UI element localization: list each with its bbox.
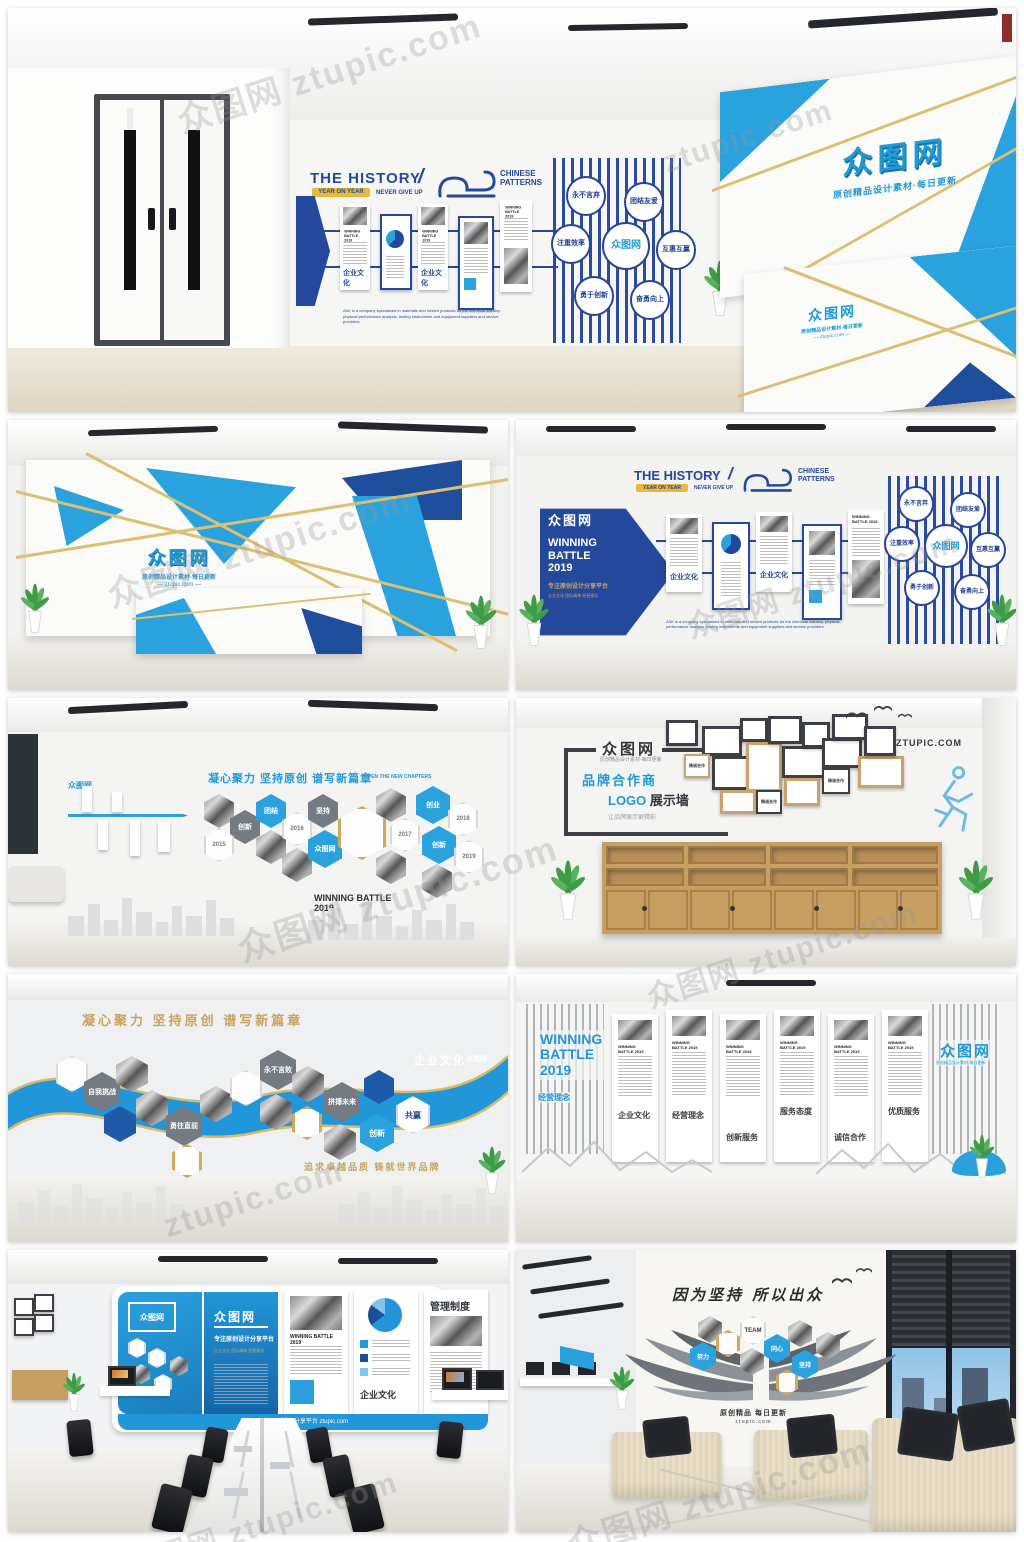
year: 2015 (212, 842, 225, 848)
brand-logo: 众图网 (214, 1308, 256, 1325)
cabinet-door (774, 890, 814, 930)
cabinet-door (858, 890, 898, 930)
ceiling-vent (726, 980, 816, 986)
door-knob (814, 906, 819, 911)
wall-bottom-band: 专注原创设计分享平台 ztupic.com (118, 1414, 488, 1430)
reception-desk: 众图网 原创精品设计素材·每日更新 — ztupic.com — (744, 246, 1016, 412)
value-text: 永不言弃 (572, 192, 600, 200)
panel-photo (343, 207, 367, 225)
winning-line: WINNING (548, 537, 597, 549)
word-hex: 团结 (256, 794, 286, 828)
panel-subtitle: 企业文化 (343, 268, 367, 288)
value-circle: 团结友爱 (624, 182, 664, 222)
bird-icon (874, 704, 892, 712)
chinese-patterns-label: CHINESE PATTERNS (798, 468, 835, 483)
timeline-card (82, 786, 92, 812)
winning-battle: WINNING BATTLE 2019 (538, 1030, 604, 1080)
history-gold-tag: YEAR ON YEAR (636, 484, 688, 492)
pie-chart (368, 1298, 402, 1332)
city-skyline (308, 898, 478, 940)
scene-geometric-reception: 众图网 原创精品设计素材·每日更新 — ztupic.com — (8, 420, 508, 690)
value-text: 勇于创新 (580, 292, 608, 300)
winning-line: WINNING (540, 1031, 602, 1047)
hex (128, 1338, 146, 1358)
mountain-outline (522, 1132, 712, 1176)
left-subtitle: 经营理念 (538, 1092, 570, 1103)
cabinet-door (690, 890, 730, 930)
badge-tags: 企业文化 团队精神 经营理念 (214, 1348, 264, 1354)
plant (540, 834, 596, 946)
winning-line: BATTLE (540, 1046, 594, 1062)
word-hex: 创业 (416, 786, 450, 824)
cabinet-door (732, 890, 772, 930)
panel-title: WINNING BATTLE 2019 (726, 1044, 760, 1054)
pillow (897, 1406, 959, 1461)
logo-frame (720, 790, 756, 814)
value-text: 注重效率 (890, 541, 914, 548)
history-gold-tag: YEAR ON YEAR (312, 188, 370, 197)
tag: 团队精神 (231, 1348, 247, 1353)
legend-swatch (360, 1354, 368, 1362)
logo-frame (746, 742, 782, 792)
cloud-icon (740, 468, 794, 496)
logo-word: LOGO (608, 793, 646, 808)
timeline-card (158, 822, 170, 852)
logo-frame (666, 720, 698, 746)
panel-title: WINNING BATTLE 2019 (852, 514, 880, 524)
panel-photo (809, 531, 835, 555)
logo-block: 众图网 原创精品设计素材·每日更新 — ztupic.com — (104, 544, 254, 588)
ceiling-vent (726, 424, 826, 430)
tag: 经营理念 (582, 593, 598, 598)
mini-timeline: 众图网 (68, 780, 198, 870)
hex-word: 共赢 (405, 1110, 421, 1121)
team-label: TEAM (745, 1328, 762, 1334)
door-stripe (188, 130, 200, 290)
brand-logo: 众图网 (104, 544, 254, 570)
runner-sketch (914, 754, 986, 846)
panel-subtitle: 企业文化 (760, 570, 788, 580)
wall-caption: 原创精品 每日更新 ztupic.com (720, 1408, 787, 1425)
wall-panel: WINNING BATTLE 2019 (284, 1290, 348, 1414)
panel-subtitle: 服务态度 (780, 1106, 814, 1117)
keyboard (270, 1462, 290, 1469)
year: 2016 (290, 826, 303, 832)
door-knob (730, 906, 735, 911)
history-panel: WINNING BATTLE 2019 企业文化 (340, 204, 370, 290)
photo-hex (170, 1356, 188, 1376)
hex-word: 创新 (369, 1128, 385, 1139)
logo-circle: 众图网 (924, 524, 968, 568)
brand-logo: 众图网 (315, 844, 336, 854)
value-circle: 互惠互赢 (970, 532, 1006, 568)
shelf-cell (770, 868, 848, 886)
panel-title: WINNING BATTLE 2019 (834, 1044, 868, 1054)
patterns-line2: PATTERNS (798, 476, 835, 483)
panel-photo (726, 1020, 760, 1040)
value-text: 奋勇向上 (636, 296, 664, 304)
plant (12, 558, 58, 658)
wall-title: 凝心聚力 坚持原创 谱写新篇章 (82, 1010, 303, 1029)
legend-swatch (360, 1368, 368, 1376)
hex-word: 团结 (264, 806, 278, 816)
photo-hex (376, 850, 406, 884)
divider (214, 1326, 268, 1328)
shelf-cell (852, 868, 938, 886)
logo-frame (702, 726, 742, 756)
legend-text (372, 1368, 410, 1376)
scene-vertical-panels-wall: WINNING BATTLE 2019 经营理念 WINNING BATTLE … (516, 974, 1016, 1242)
caption-text: 原创精品 每日更新 (720, 1410, 787, 1417)
winning-line: 2019 (540, 1062, 571, 1078)
panel-text (834, 1056, 868, 1096)
panel-title: WINNING BATTLE 2019 (505, 205, 527, 219)
door-glass (127, 108, 133, 130)
door-leaf-right (164, 100, 224, 340)
sofa (8, 866, 64, 902)
year: 2017 (398, 832, 411, 838)
panel-photo (670, 518, 698, 534)
keyboard (224, 1488, 248, 1496)
door-handle (169, 208, 176, 230)
history-panel-framed (802, 524, 842, 620)
scene-wave-hexagon-wall: 凝心聚力 坚持原创 谱写新篇章 自我挑战 勇往直前 永不言败 拼搏未来 创新 共… (8, 974, 508, 1242)
timeline-card (130, 820, 140, 856)
brand-logo: 众图网 (932, 541, 959, 551)
legend-text (372, 1354, 410, 1362)
value-circle: 奋勇向上 (630, 280, 670, 320)
hex-word: 永不言败 (264, 1065, 292, 1075)
brand-url: ztupic.com (320, 1419, 349, 1425)
hex-word: 拼搏未来 (328, 1097, 356, 1107)
door-knob (898, 906, 903, 911)
year-hex: 2017 (390, 818, 420, 852)
history-title: THE HISTORY (634, 468, 721, 483)
history-panel: 企业文化 (756, 512, 792, 592)
never-give-up: NEVER GIVE UP (376, 190, 423, 196)
shelf-cell (688, 846, 766, 864)
ceiling-light (538, 1302, 624, 1319)
value-circle: 永不言弃 (898, 486, 934, 522)
brand-tagline: 原创精品设计素材·每日更新 (936, 1060, 985, 1066)
pie-chart (386, 230, 404, 248)
preview-collage: THE HISTORY / YEAR ON YEAR NEVER GIVE UP… (0, 0, 1024, 1542)
legend-text (372, 1340, 410, 1348)
bird-icon (832, 1276, 852, 1285)
wave-band (8, 1030, 508, 1170)
year-hex: 2019 (454, 840, 484, 874)
panel-text (214, 1364, 268, 1404)
hex-word: 创新 (432, 840, 446, 850)
ceiling-vent (338, 1258, 438, 1264)
scene-wings-lounge: 因为坚持 所以出众 努力 TEAM 同心 坚持 原创精品 每日更新 ztupic… (516, 1250, 1016, 1532)
value-text: 勇于创新 (910, 585, 934, 592)
plant (456, 570, 506, 674)
logo-frame (864, 726, 896, 756)
hex-word: 同心 (771, 1344, 783, 1353)
wall-panel: 企业文化 (354, 1290, 418, 1414)
logo-block: 众图网 原创精品设计素材·每日更新 (800, 121, 990, 205)
panel-text (464, 248, 488, 274)
photo-frame (14, 1318, 34, 1336)
logo-frame (768, 716, 802, 744)
panel-photo (852, 560, 880, 598)
door-knob (642, 906, 647, 911)
wall-word: 展示墙 (650, 793, 689, 808)
history-panel: WINNING BATTLE 2019 企业文化 (418, 204, 448, 290)
word-hex: 创新 (422, 826, 456, 864)
panel-subtitle: 管理制度 (430, 1298, 470, 1313)
history-panel: WINNING BATTLE 2019 (500, 200, 532, 292)
logo-frame (858, 756, 904, 788)
year: 2018 (456, 816, 469, 822)
history-panel: 企业文化 (666, 514, 702, 592)
door-frame (94, 94, 230, 346)
plant (470, 1124, 508, 1216)
photo-frame (34, 1314, 54, 1332)
value-circle: 勇于创新 (574, 276, 614, 316)
monitor (108, 1366, 136, 1386)
city-skyline (18, 1180, 188, 1222)
panel-accent (464, 278, 476, 290)
scene-history-wall-front: THE HISTORY / YEAR ON YEAR NEVER GIVE UP… (516, 420, 1016, 690)
word-hex: 创新 (230, 810, 260, 844)
value-text: 团结友爱 (956, 507, 980, 514)
panel-title: WINNING BATTLE 2019 (290, 1334, 342, 1346)
photo-hex (256, 830, 286, 864)
far-room-accent (1002, 14, 1012, 42)
value-circle: 注重效率 (551, 224, 591, 264)
panel-text (670, 538, 698, 568)
cabinet-door (648, 890, 688, 930)
panel-text (343, 242, 367, 264)
history-slash: / (418, 166, 424, 189)
cabinet-door (816, 890, 856, 930)
value-circle: 永不言弃 (566, 176, 606, 216)
monitor (476, 1370, 504, 1390)
scene-partner-logo-wall: 众图网 原创精品设计素材·每日更新 品牌合作商 LOGO 展示墙 让品牌展示更精… (516, 698, 1016, 966)
value-circle: 勇于创新 (904, 570, 940, 606)
pie-chart (721, 534, 741, 554)
blue-triangle (136, 598, 216, 654)
brand-logo: 众图网 (466, 1054, 487, 1064)
panel-photo (834, 1020, 868, 1040)
panel-text (852, 528, 880, 556)
history-panel-framed (712, 522, 750, 610)
panel-title: WINNING BATTLE 2019 (618, 1044, 652, 1054)
logo-block: 众图网 原创精品设计素材·每日更新 — ztupic.com — (772, 297, 892, 346)
timeline-line (68, 814, 188, 817)
year-hex: 2016 (282, 812, 312, 846)
value-text: 互惠互赢 (976, 547, 1000, 554)
side-desk (100, 1386, 170, 1396)
plant (962, 1114, 1002, 1198)
panel-photo (672, 1016, 706, 1036)
cloud-icon (434, 170, 498, 202)
value-text: 互惠互赢 (662, 246, 690, 254)
reception-desk (136, 588, 362, 654)
floor (516, 1180, 1016, 1242)
bird-icon (846, 710, 868, 720)
value-text: 注重效率 (557, 240, 585, 248)
timeline-card (98, 820, 108, 850)
value-circle: 注重效率 (884, 526, 920, 562)
winning-battle: WINNING BATTLE 2019 (548, 537, 666, 575)
legend-swatch (360, 1340, 368, 1348)
panel-accent (290, 1380, 314, 1404)
panel-subtitle: 企业文化 (670, 572, 698, 582)
culture-panel: WINNING BATTLE 2019 服务态度 (774, 1010, 820, 1162)
brand-tagline: 原创精品设计素材·每日更新 (104, 572, 254, 581)
year-hex: 2018 (448, 802, 478, 836)
tag: 团队精神 (565, 593, 581, 598)
plant (948, 834, 1004, 946)
keyboard (234, 1446, 252, 1452)
brand-tagline: 原创精品设计素材·每日更新 (600, 756, 662, 763)
panel-photo (618, 1020, 652, 1040)
partner-title: 品牌合作商 (582, 770, 657, 789)
plant (516, 570, 558, 670)
brand-logo: 众图网 (940, 1040, 991, 1061)
photo-hex (282, 848, 312, 882)
history-panel-framed (380, 214, 412, 290)
monitor-screen (446, 1372, 464, 1382)
brand-logo: 众图网 (611, 240, 641, 252)
patterns-line1: CHINESE (798, 468, 829, 475)
panel-photo (290, 1296, 342, 1330)
shelf-cell (606, 868, 684, 886)
wall-subtitle-en: OPEN THE NEW CHAPTERS (364, 774, 432, 780)
year-hex: 2015 (204, 828, 234, 862)
brand-url-upper: ZTUPIC.COM (896, 738, 962, 748)
cabinet-door (900, 890, 938, 930)
scene-office-culture-wall: 众图网 众图网 专注原创设计分享平台 企业文化 团队精神 经营理念 (8, 1250, 508, 1532)
pillow (786, 1414, 838, 1459)
value-circle: 互惠互赢 (656, 230, 696, 270)
panel-text (290, 1346, 342, 1374)
hex-word: 勇往直前 (170, 1121, 198, 1131)
bird-icon (856, 1266, 872, 1274)
history-description: ZAK is a company specialized in material… (343, 308, 513, 325)
monitor (442, 1368, 472, 1390)
word-hex: 坚持 (308, 794, 338, 828)
calligraphy-title: 因为坚持 所以出众 (672, 1284, 824, 1305)
ceiling (516, 974, 1016, 1002)
logo-box: 众图网 (128, 1302, 176, 1332)
brand-logo: 众图网 (548, 510, 666, 529)
office-chair (66, 1419, 94, 1457)
panel-text (780, 1052, 814, 1096)
winning-line: BATTLE (548, 550, 591, 562)
panel-text (386, 256, 404, 278)
wall-title: 凝心聚力 坚持原创 谱写新篇章 (208, 770, 372, 786)
tag: 经营理念 (248, 1348, 264, 1353)
plant (978, 570, 1016, 670)
cabinet-door (606, 890, 646, 930)
panel-photo (888, 1016, 922, 1036)
hex-word: 创业 (426, 800, 440, 810)
panel-text (726, 1056, 760, 1096)
panel-photo (760, 516, 788, 532)
shelf-cell (770, 846, 848, 864)
floor (516, 642, 1016, 690)
partner-subtitle: LOGO 展示墙 (608, 790, 689, 809)
chinese-patterns-label: CHINESE PATTERNS (500, 170, 542, 188)
panel-subtitle: 优质服务 (888, 1106, 922, 1117)
panel-photo (504, 248, 528, 284)
panel-text (421, 242, 445, 264)
history-slash: / (728, 464, 733, 484)
logo-frame (784, 778, 820, 806)
culture-panel: WINNING BATTLE 2019 创新服务 (720, 1014, 766, 1162)
panel-subtitle: 企业文化 (421, 268, 445, 288)
platform-line: 专注原创设计分享平台 (214, 1334, 274, 1343)
frame-label: 精诚合作 (828, 778, 844, 784)
door-stripe (124, 130, 136, 290)
logo-hex: 众图网 (308, 830, 342, 868)
pillow (642, 1416, 692, 1459)
pillow (956, 1398, 1015, 1452)
brand-logo: 众图网 (140, 1312, 164, 1323)
hex-word: 创新 (238, 822, 252, 832)
value-text: 永不言弃 (904, 501, 928, 508)
wood-cabinet (602, 842, 942, 934)
panel-subtitle: 企业文化 (618, 1110, 652, 1121)
patterns-line2: PATTERNS (500, 178, 542, 187)
timeline-card (112, 792, 122, 812)
panel-text (721, 562, 741, 596)
scene-lobby-history-wall: THE HISTORY / YEAR ON YEAR NEVER GIVE UP… (8, 8, 1016, 412)
photo-frame (34, 1294, 54, 1312)
year: 2019 (462, 854, 475, 860)
panel-text (672, 1052, 706, 1096)
shelf-cell (606, 846, 684, 864)
partner-caption: 让品牌展示更精彩 (608, 812, 656, 821)
panel-photo (464, 222, 488, 244)
band-title: 企业文化 (414, 1052, 466, 1068)
value-text: 团结友爱 (630, 198, 658, 206)
logo-frame-label: 精诚合作 (756, 790, 782, 814)
hex-word: 坚持 (799, 1360, 811, 1369)
photo-frame (14, 1298, 34, 1316)
badge-tags: 企业文化 团队精神 经营理念 (548, 593, 666, 599)
office-chair (436, 1421, 464, 1459)
ceiling (8, 974, 508, 1000)
panel-photo (780, 1016, 814, 1036)
frame-label: 精诚合作 (761, 799, 777, 805)
logo-circle: 众图网 (602, 222, 650, 270)
scene-hexagon-history: 众图网 凝心聚力 坚持原创 谱写新篇章 OPEN THE NEW CHAPTER… (8, 698, 508, 966)
panel-text (618, 1056, 652, 1096)
panel-subtitle: 企业文化 (360, 1388, 396, 1401)
logo-frame-label: 精诚合作 (684, 754, 710, 778)
culture-wall: 众图网 众图网 专注原创设计分享平台 企业文化 团队精神 经营理念 (112, 1286, 444, 1432)
wall-slogan: 追求卓越品质 铸就世界品牌 (304, 1160, 441, 1173)
logo-frame (740, 718, 768, 742)
hex (148, 1348, 166, 1368)
wall-blue-center: 众图网 专注原创设计分享平台 企业文化 团队精神 经营理念 (204, 1292, 278, 1414)
patterns-line1: CHINESE (500, 169, 536, 178)
panel-accent (809, 590, 822, 603)
panel-subtitle: 创新服务 (726, 1132, 760, 1143)
never-give-up: NEVER GIVE UP (694, 485, 733, 491)
panel-title: WINNING BATTLE 2019 (780, 1040, 814, 1050)
monitor (526, 1362, 544, 1375)
door-leaf-left (100, 100, 160, 340)
photo-hex (204, 794, 234, 828)
ceiling-vent (546, 426, 636, 432)
shelf-cell (688, 868, 766, 886)
